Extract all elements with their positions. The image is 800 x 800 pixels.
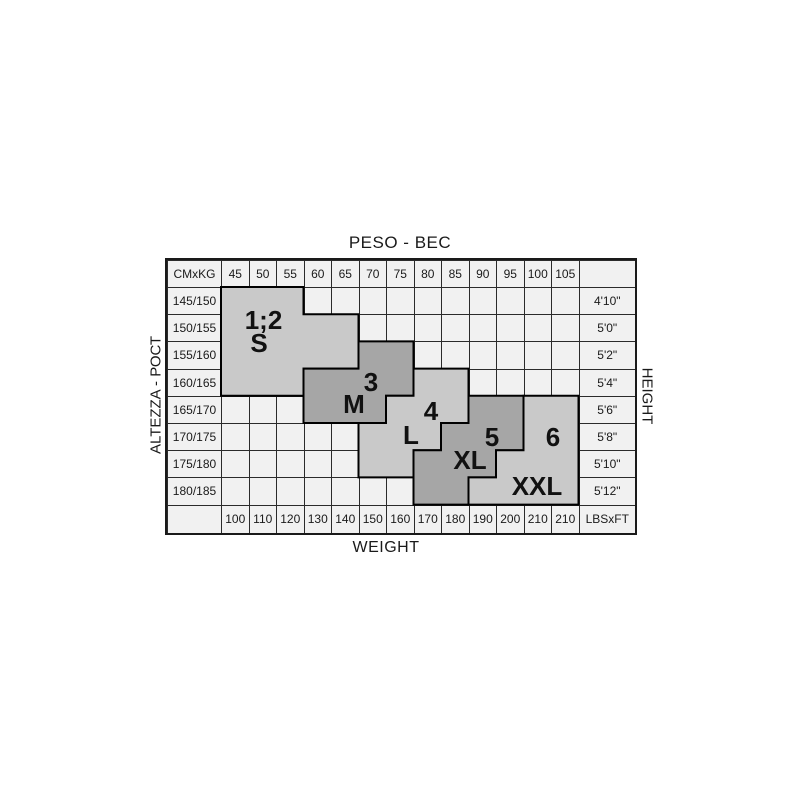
axis-label-weight: WEIGHT: [353, 539, 420, 557]
size-chart: PESO - ВЕС ALTEZZA - РОСТ HEIGHT WEIGHT …: [0, 0, 800, 800]
size-number-xl: 5: [485, 424, 499, 450]
size-letter-m: M: [343, 391, 365, 417]
size-number-l: 4: [424, 398, 438, 424]
size-table: CMxKG4550556065707580859095100105145/150…: [165, 258, 637, 535]
size-letter-xl: XL: [453, 447, 486, 473]
size-letter-s: S: [250, 330, 267, 356]
size-letter-xxl: XXL: [512, 473, 563, 499]
size-number-xxl: 6: [546, 424, 560, 450]
axis-label-height: HEIGHT: [639, 368, 656, 425]
size-letter-l: L: [403, 422, 419, 448]
size-number-m: 3: [364, 369, 378, 395]
title-peso-bec: PESO - ВЕС: [349, 233, 451, 253]
axis-label-altezza-rost: ALTEZZA - РОСТ: [148, 336, 165, 454]
size-regions-overlay: [167, 260, 635, 533]
